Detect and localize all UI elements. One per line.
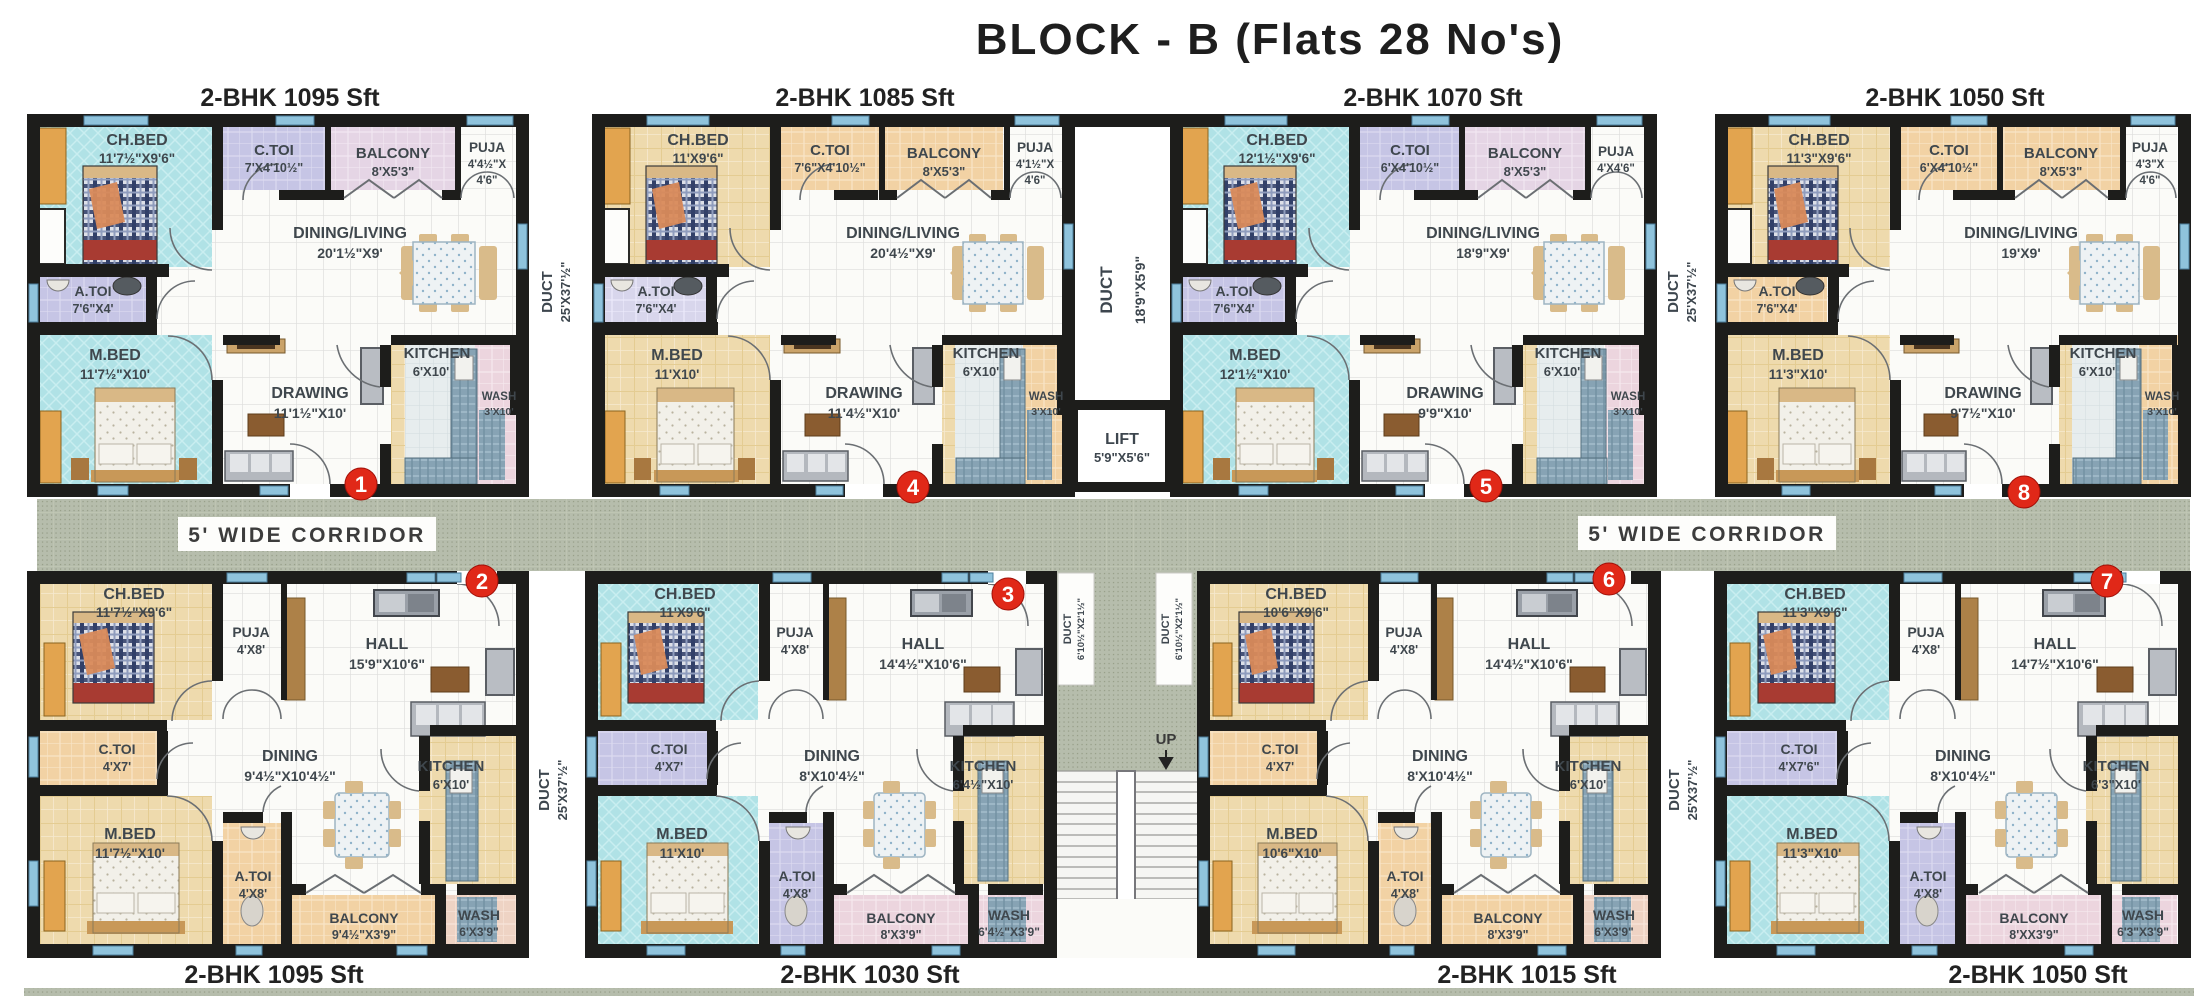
svg-text:18'9"X9': 18'9"X9' bbox=[1456, 245, 1510, 261]
svg-text:DUCT: DUCT bbox=[1666, 769, 1683, 811]
svg-text:4'1½"X: 4'1½"X bbox=[1016, 159, 1055, 171]
svg-text:BALCONY: BALCONY bbox=[907, 145, 981, 162]
svg-text:11'7½"X10': 11'7½"X10' bbox=[80, 367, 150, 382]
svg-text:DRAWING: DRAWING bbox=[825, 385, 902, 402]
svg-text:DINING: DINING bbox=[1935, 748, 1991, 765]
svg-text:C.TOI: C.TOI bbox=[98, 741, 135, 757]
svg-text:20'4½"X9': 20'4½"X9' bbox=[870, 245, 935, 261]
svg-text:4'X7': 4'X7' bbox=[1266, 760, 1294, 774]
svg-text:C.TOI: C.TOI bbox=[650, 741, 687, 757]
svg-text:7'6"X4': 7'6"X4' bbox=[1756, 302, 1797, 316]
svg-text:BALCONY: BALCONY bbox=[329, 910, 399, 926]
svg-text:25'X37'½": 25'X37'½" bbox=[555, 760, 570, 821]
svg-text:25'X37'½": 25'X37'½" bbox=[1685, 760, 1700, 821]
svg-text:4'3"X: 4'3"X bbox=[2136, 159, 2165, 171]
svg-text:8'X10'4½": 8'X10'4½" bbox=[799, 768, 864, 784]
svg-text:7'6"X4': 7'6"X4' bbox=[1213, 302, 1254, 316]
svg-text:M.BED: M.BED bbox=[1266, 826, 1318, 843]
svg-text:PUJA: PUJA bbox=[1385, 624, 1422, 640]
svg-text:WASH: WASH bbox=[2145, 391, 2180, 403]
svg-text:6'X3'9": 6'X3'9" bbox=[459, 925, 498, 939]
svg-text:A.TOI: A.TOI bbox=[637, 283, 674, 299]
svg-text:7'6"X4': 7'6"X4' bbox=[72, 302, 113, 316]
svg-text:DUCT: DUCT bbox=[1062, 613, 1074, 644]
svg-text:10'6"X9'6": 10'6"X9'6" bbox=[1263, 605, 1329, 620]
svg-text:5: 5 bbox=[1480, 474, 1492, 499]
svg-text:KITCHEN: KITCHEN bbox=[2070, 345, 2137, 362]
svg-text:DUCT: DUCT bbox=[536, 769, 553, 811]
svg-text:PUJA: PUJA bbox=[1907, 624, 1944, 640]
svg-text:25'X37'½": 25'X37'½" bbox=[1684, 262, 1699, 323]
svg-text:KITCHEN: KITCHEN bbox=[404, 345, 471, 362]
svg-text:9'4½"X10'4½": 9'4½"X10'4½" bbox=[244, 768, 336, 784]
svg-text:6'X10': 6'X10' bbox=[1544, 364, 1581, 379]
svg-text:3'X10': 3'X10' bbox=[1031, 406, 1061, 418]
svg-text:BLOCK - B (Flats 28 No's): BLOCK - B (Flats 28 No's) bbox=[976, 15, 1565, 64]
svg-text:2-BHK 1050 Sft: 2-BHK 1050 Sft bbox=[1865, 84, 2045, 112]
svg-text:CH.BED: CH.BED bbox=[106, 132, 167, 149]
svg-text:M.BED: M.BED bbox=[656, 826, 708, 843]
svg-text:2-BHK 1085 Sft: 2-BHK 1085 Sft bbox=[775, 84, 955, 112]
svg-text:DUCT: DUCT bbox=[1160, 613, 1172, 644]
svg-text:6'X10': 6'X10' bbox=[2079, 364, 2116, 379]
svg-text:PUJA: PUJA bbox=[2132, 140, 2168, 155]
svg-text:DINING: DINING bbox=[804, 748, 860, 765]
svg-text:HALL: HALL bbox=[366, 636, 409, 653]
svg-text:WASH: WASH bbox=[1611, 391, 1646, 403]
svg-text:7'X4'10½": 7'X4'10½" bbox=[245, 161, 304, 175]
svg-text:BALCONY: BALCONY bbox=[1999, 910, 2069, 926]
svg-text:2-BHK 1030 Sft: 2-BHK 1030 Sft bbox=[780, 961, 960, 989]
svg-text:8'XX3'9": 8'XX3'9" bbox=[2009, 928, 2058, 942]
svg-text:14'7½"X10'6": 14'7½"X10'6" bbox=[2011, 656, 2099, 672]
svg-text:25'X37'½": 25'X37'½" bbox=[558, 262, 573, 323]
svg-text:3'X10': 3'X10' bbox=[1613, 406, 1643, 418]
svg-text:6'X4'10½": 6'X4'10½" bbox=[1920, 161, 1979, 175]
svg-text:11'4½"X10': 11'4½"X10' bbox=[828, 405, 900, 421]
svg-text:PUJA: PUJA bbox=[776, 624, 813, 640]
svg-text:4'X8': 4'X8' bbox=[1391, 887, 1419, 901]
svg-text:2-BHK 1015 Sft: 2-BHK 1015 Sft bbox=[1437, 961, 1617, 989]
svg-text:6'3"X3'9": 6'3"X3'9" bbox=[2117, 925, 2169, 939]
svg-text:8: 8 bbox=[2018, 480, 2030, 505]
svg-text:UP: UP bbox=[1156, 731, 1177, 748]
svg-text:11'X10': 11'X10' bbox=[655, 367, 700, 382]
svg-text:1: 1 bbox=[355, 472, 367, 497]
svg-text:WASH: WASH bbox=[2122, 907, 2164, 923]
svg-text:2-BHK 1095 Sft: 2-BHK 1095 Sft bbox=[200, 84, 380, 112]
svg-text:19'X9': 19'X9' bbox=[2001, 245, 2040, 261]
svg-text:BALCONY: BALCONY bbox=[1473, 910, 1543, 926]
svg-text:6'10½"X2'1½": 6'10½"X2'1½" bbox=[1076, 598, 1087, 660]
svg-text:KITCHEN: KITCHEN bbox=[1555, 758, 1622, 775]
svg-text:A.TOI: A.TOI bbox=[74, 283, 111, 299]
svg-text:4'X8': 4'X8' bbox=[1390, 643, 1418, 657]
svg-text:4'X4'6": 4'X4'6" bbox=[1597, 163, 1635, 175]
svg-text:4'6": 4'6" bbox=[1025, 175, 1046, 187]
svg-text:11'3"X9'6": 11'3"X9'6" bbox=[1786, 151, 1851, 166]
svg-text:A.TOI: A.TOI bbox=[1215, 283, 1252, 299]
svg-text:20'1½"X9': 20'1½"X9' bbox=[317, 245, 382, 261]
svg-text:14'4½"X10'6": 14'4½"X10'6" bbox=[1485, 656, 1573, 672]
svg-text:A.TOI: A.TOI bbox=[234, 868, 271, 884]
svg-text:4'X8': 4'X8' bbox=[781, 643, 809, 657]
svg-text:12'1½"X10': 12'1½"X10' bbox=[1220, 367, 1291, 382]
svg-text:M.BED: M.BED bbox=[651, 347, 703, 364]
svg-text:11'X9'6": 11'X9'6" bbox=[659, 605, 710, 620]
svg-text:M.BED: M.BED bbox=[89, 347, 141, 364]
svg-text:8'X10'4½": 8'X10'4½" bbox=[1930, 768, 1995, 784]
svg-text:DRAWING: DRAWING bbox=[1944, 385, 2021, 402]
svg-text:11'7½"X9'6": 11'7½"X9'6" bbox=[99, 151, 175, 166]
svg-text:6'X10': 6'X10' bbox=[963, 364, 1000, 379]
svg-text:M.BED: M.BED bbox=[104, 826, 156, 843]
svg-text:3'X10': 3'X10' bbox=[2147, 406, 2177, 418]
svg-text:4'X8': 4'X8' bbox=[1912, 643, 1940, 657]
svg-text:LIFT: LIFT bbox=[1105, 431, 1139, 448]
svg-text:A.TOI: A.TOI bbox=[778, 868, 815, 884]
svg-text:DINING/LIVING: DINING/LIVING bbox=[846, 225, 960, 242]
svg-text:PUJA: PUJA bbox=[469, 140, 505, 155]
svg-text:A.TOI: A.TOI bbox=[1386, 868, 1423, 884]
svg-text:4'X7'6": 4'X7'6" bbox=[1778, 760, 1819, 774]
svg-text:6'X10': 6'X10' bbox=[433, 777, 470, 792]
svg-text:DINING/LIVING: DINING/LIVING bbox=[1426, 225, 1540, 242]
svg-text:CH.BED: CH.BED bbox=[1246, 132, 1307, 149]
svg-text:CH.BED: CH.BED bbox=[654, 586, 715, 603]
svg-text:DINING: DINING bbox=[1412, 748, 1468, 765]
svg-text:M.BED: M.BED bbox=[1786, 826, 1838, 843]
svg-text:C.TOI: C.TOI bbox=[810, 142, 850, 159]
svg-text:2-BHK 1070 Sft: 2-BHK 1070 Sft bbox=[1343, 84, 1523, 112]
svg-text:BALCONY: BALCONY bbox=[866, 910, 936, 926]
svg-text:8'X5'3": 8'X5'3" bbox=[923, 164, 966, 179]
svg-text:KITCHEN: KITCHEN bbox=[950, 758, 1017, 775]
svg-text:4'X8': 4'X8' bbox=[237, 643, 265, 657]
svg-text:CH.BED: CH.BED bbox=[1788, 132, 1849, 149]
svg-text:CH.BED: CH.BED bbox=[1265, 586, 1326, 603]
svg-text:5' WIDE CORRIDOR: 5' WIDE CORRIDOR bbox=[1588, 523, 1826, 546]
svg-text:DUCT: DUCT bbox=[1097, 266, 1116, 314]
svg-text:5' WIDE CORRIDOR: 5' WIDE CORRIDOR bbox=[188, 524, 426, 547]
svg-text:4'X8': 4'X8' bbox=[239, 887, 267, 901]
svg-text:11'3"X10': 11'3"X10' bbox=[1783, 846, 1842, 861]
svg-text:11'X9'6": 11'X9'6" bbox=[672, 151, 723, 166]
svg-text:DRAWING: DRAWING bbox=[1406, 385, 1483, 402]
svg-text:HALL: HALL bbox=[1508, 636, 1551, 653]
svg-text:M.BED: M.BED bbox=[1229, 347, 1281, 364]
svg-text:A.TOI: A.TOI bbox=[1909, 868, 1946, 884]
svg-text:4'6": 4'6" bbox=[2140, 175, 2161, 187]
svg-text:C.TOI: C.TOI bbox=[1390, 142, 1430, 159]
svg-text:8'X10'4½": 8'X10'4½" bbox=[1407, 768, 1472, 784]
svg-text:18'9"X5'9": 18'9"X5'9" bbox=[1132, 256, 1148, 324]
svg-text:11'7½"X9'6": 11'7½"X9'6" bbox=[96, 605, 172, 620]
svg-text:9'9"X10': 9'9"X10' bbox=[1418, 405, 1472, 421]
svg-text:11'3"X9'6": 11'3"X9'6" bbox=[1782, 605, 1847, 620]
svg-text:6: 6 bbox=[1603, 567, 1615, 592]
svg-text:15'9"X10'6": 15'9"X10'6" bbox=[349, 656, 425, 672]
svg-text:WASH: WASH bbox=[458, 907, 500, 923]
svg-text:C.TOI: C.TOI bbox=[254, 142, 294, 159]
svg-text:6'3"X10': 6'3"X10' bbox=[2091, 777, 2141, 792]
svg-text:8'X5'3": 8'X5'3" bbox=[1504, 164, 1547, 179]
svg-text:11'7½"X10': 11'7½"X10' bbox=[95, 846, 165, 861]
svg-text:7'6"X4'10½": 7'6"X4'10½" bbox=[794, 161, 865, 175]
svg-text:2-BHK 1095 Sft: 2-BHK 1095 Sft bbox=[184, 961, 364, 989]
svg-text:DINING/LIVING: DINING/LIVING bbox=[293, 225, 407, 242]
svg-text:PUJA: PUJA bbox=[1598, 144, 1634, 159]
svg-text:PUJA: PUJA bbox=[1017, 140, 1053, 155]
svg-text:9'4½"X3'9": 9'4½"X3'9" bbox=[332, 928, 396, 942]
svg-text:DUCT: DUCT bbox=[539, 271, 556, 313]
svg-text:8'X3'9": 8'X3'9" bbox=[1487, 928, 1528, 942]
svg-text:11'1½"X10': 11'1½"X10' bbox=[274, 405, 346, 421]
svg-text:8'X3'9": 8'X3'9" bbox=[880, 928, 921, 942]
svg-text:11'X10': 11'X10' bbox=[660, 846, 705, 861]
svg-text:3: 3 bbox=[1002, 582, 1014, 607]
svg-text:5'9"X5'6": 5'9"X5'6" bbox=[1094, 450, 1150, 465]
svg-text:PUJA: PUJA bbox=[232, 624, 269, 640]
svg-text:BALCONY: BALCONY bbox=[1488, 145, 1562, 162]
svg-text:CH.BED: CH.BED bbox=[103, 586, 164, 603]
svg-text:4'6": 4'6" bbox=[477, 175, 498, 187]
svg-text:DRAWING: DRAWING bbox=[271, 385, 348, 402]
svg-text:KITCHEN: KITCHEN bbox=[1535, 345, 1602, 362]
svg-text:11'3"X10': 11'3"X10' bbox=[1769, 367, 1828, 382]
svg-text:DINING: DINING bbox=[262, 748, 318, 765]
svg-text:9'7½"X10': 9'7½"X10' bbox=[1950, 405, 2015, 421]
svg-text:8'X5'3": 8'X5'3" bbox=[2040, 164, 2083, 179]
svg-text:2-BHK 1050 Sft: 2-BHK 1050 Sft bbox=[1948, 961, 2128, 989]
svg-text:DINING/LIVING: DINING/LIVING bbox=[1964, 225, 2078, 242]
svg-text:6'4½"X3'9": 6'4½"X3'9" bbox=[978, 925, 1040, 939]
svg-text:6'X10': 6'X10' bbox=[1570, 777, 1607, 792]
svg-text:WASH: WASH bbox=[482, 391, 517, 403]
svg-text:4'X8': 4'X8' bbox=[783, 887, 811, 901]
svg-text:8'X5'3": 8'X5'3" bbox=[372, 164, 415, 179]
svg-text:4'X7': 4'X7' bbox=[655, 760, 683, 774]
svg-text:7: 7 bbox=[2101, 569, 2113, 594]
svg-text:4'X8': 4'X8' bbox=[1914, 887, 1942, 901]
svg-text:WASH: WASH bbox=[988, 907, 1030, 923]
svg-text:CH.BED: CH.BED bbox=[1784, 586, 1845, 603]
svg-text:C.TOI: C.TOI bbox=[1780, 741, 1817, 757]
svg-text:BALCONY: BALCONY bbox=[2024, 145, 2098, 162]
svg-text:2: 2 bbox=[476, 569, 488, 594]
svg-text:4: 4 bbox=[907, 475, 920, 500]
svg-text:6'X10': 6'X10' bbox=[413, 364, 450, 379]
svg-text:BALCONY: BALCONY bbox=[356, 145, 430, 162]
svg-text:KITCHEN: KITCHEN bbox=[953, 345, 1020, 362]
svg-text:6'10½"X2'1½": 6'10½"X2'1½" bbox=[1174, 598, 1185, 660]
svg-text:7'6"X4': 7'6"X4' bbox=[635, 302, 676, 316]
svg-text:WASH: WASH bbox=[1593, 907, 1635, 923]
svg-text:6'X3'9": 6'X3'9" bbox=[1594, 925, 1633, 939]
svg-text:KITCHEN: KITCHEN bbox=[2083, 758, 2150, 775]
svg-text:HALL: HALL bbox=[2034, 636, 2077, 653]
svg-text:4'4½"X: 4'4½"X bbox=[468, 159, 507, 171]
svg-text:12'1½"X9'6": 12'1½"X9'6" bbox=[1238, 151, 1315, 166]
svg-text:6'4½"X10': 6'4½"X10' bbox=[953, 777, 1014, 792]
svg-text:C.TOI: C.TOI bbox=[1929, 142, 1969, 159]
svg-text:6'X4'10½": 6'X4'10½" bbox=[1381, 161, 1440, 175]
svg-text:4'X7': 4'X7' bbox=[103, 760, 131, 774]
svg-text:A.TOI: A.TOI bbox=[1758, 283, 1795, 299]
svg-text:DUCT: DUCT bbox=[1665, 271, 1682, 313]
svg-text:WASH: WASH bbox=[1029, 391, 1064, 403]
svg-text:CH.BED: CH.BED bbox=[667, 132, 728, 149]
svg-text:3'X10': 3'X10' bbox=[484, 406, 514, 418]
svg-text:C.TOI: C.TOI bbox=[1261, 741, 1298, 757]
svg-text:M.BED: M.BED bbox=[1772, 347, 1824, 364]
svg-text:14'4½"X10'6": 14'4½"X10'6" bbox=[879, 656, 967, 672]
svg-text:KITCHEN: KITCHEN bbox=[418, 758, 485, 775]
svg-text:HALL: HALL bbox=[902, 636, 945, 653]
svg-text:10'6"X10': 10'6"X10' bbox=[1262, 846, 1321, 861]
